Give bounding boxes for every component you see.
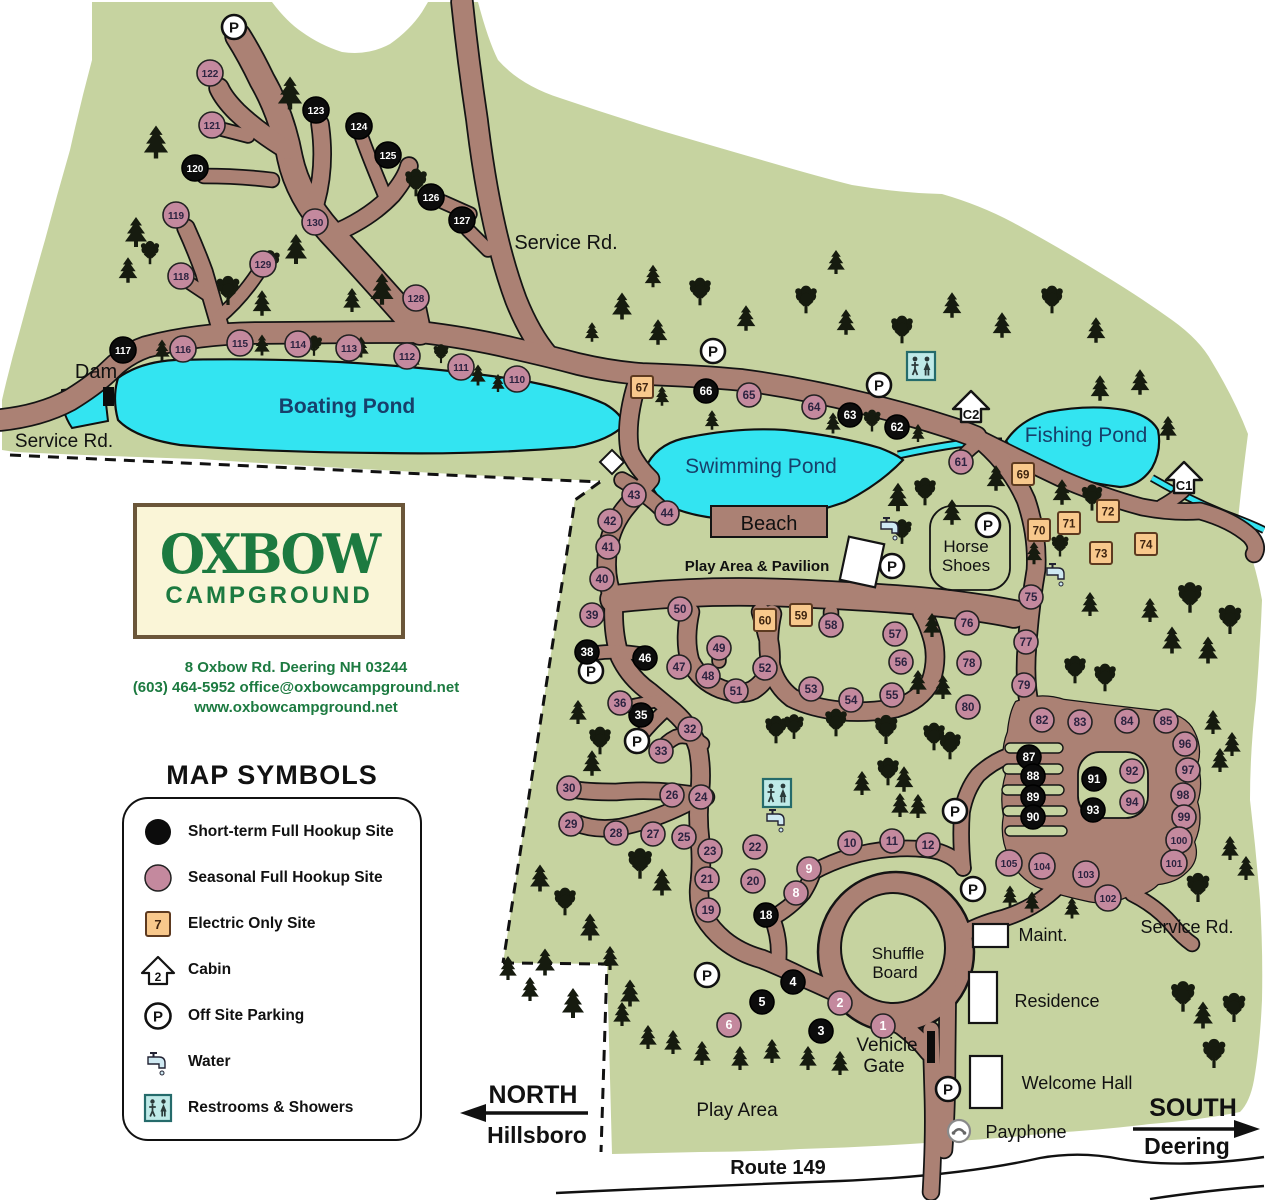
legend-symbol: [140, 861, 176, 895]
site-number: 103: [1078, 870, 1095, 881]
site-66: 66: [694, 379, 718, 403]
site-number: 83: [1074, 717, 1087, 729]
site-4: 4: [781, 970, 805, 994]
site-number: 89: [1027, 792, 1040, 804]
site-53: 53: [799, 677, 823, 701]
site-120: 120: [182, 155, 208, 181]
cabin-label: C1: [1176, 478, 1193, 493]
road: [204, 176, 272, 180]
map-label: Route 149: [730, 1157, 826, 1179]
legend-symbol: [140, 1091, 176, 1125]
site-2: 2: [828, 991, 852, 1015]
site-11: 11: [880, 829, 904, 853]
legend-box: Short-term Full Hookup SiteSeasonal Full…: [122, 797, 422, 1141]
contact-block: 8 Oxbow Rd. Deering NH 03244 (603) 464-5…: [56, 658, 536, 717]
site-124: 124: [346, 113, 372, 139]
site-number: 97: [1182, 765, 1195, 777]
site-90: 90: [1021, 805, 1045, 829]
site-number: 111: [453, 363, 469, 374]
site-number: 6: [726, 1018, 733, 1032]
parking-letter: P: [229, 20, 239, 37]
electric-site-icon: 7: [140, 907, 176, 941]
map-label: Board: [872, 963, 917, 982]
map-label: Play Area: [696, 1100, 778, 1121]
south-town-label: Deering: [1144, 1133, 1230, 1159]
figure-head: [925, 357, 930, 362]
site-number: 47: [673, 662, 686, 674]
site-number: 72: [1102, 507, 1115, 519]
site-number: 105: [1001, 859, 1018, 870]
logo: OXBOW CAMPGROUND: [133, 503, 405, 639]
site-number: 99: [1178, 812, 1191, 824]
payphone-icon: [948, 1120, 970, 1142]
parking-icon: P: [222, 15, 246, 39]
short-term-site-icon: [140, 815, 176, 849]
legend-faucet: [148, 1057, 165, 1068]
phone-email-line: (603) 464-5952 office@oxbowcampground.ne…: [56, 678, 536, 698]
legend-pink-circle: [145, 865, 171, 891]
site-73: 73: [1090, 542, 1112, 564]
site-65: 65: [737, 383, 761, 407]
logo-title: OXBOW: [160, 530, 378, 579]
site-number: 76: [961, 618, 974, 630]
h: [150, 1099, 154, 1103]
site-number: 24: [695, 792, 708, 804]
legend-symbol: P: [140, 999, 176, 1033]
site-number: 119: [168, 211, 185, 222]
site-116: 116: [170, 336, 196, 362]
site-42: 42: [598, 509, 622, 533]
site-30: 30: [557, 776, 581, 800]
address-line: 8 Oxbow Rd. Deering NH 03244: [56, 658, 536, 678]
building-residence: [969, 972, 997, 1023]
map-label: Service Rd.: [1140, 917, 1233, 937]
site-number: 26: [666, 790, 679, 802]
restrooms-icon: [140, 1091, 176, 1125]
site-number: 3: [818, 1024, 825, 1038]
site-38: 38: [575, 640, 599, 664]
site-number: 94: [1126, 797, 1139, 809]
site-61: 61: [949, 450, 973, 474]
site-52: 52: [753, 656, 777, 680]
site-93: 93: [1081, 798, 1105, 822]
map-label: Maint.: [1018, 925, 1067, 945]
site-29: 29: [559, 812, 583, 836]
site-74: 74: [1135, 533, 1157, 555]
road: [316, 124, 322, 202]
site-number: 66: [700, 386, 713, 398]
site-97: 97: [1176, 758, 1200, 782]
map-label: Play Area & Pavilion: [685, 558, 830, 575]
site-41: 41: [596, 535, 620, 559]
site-number: 27: [647, 829, 660, 841]
site-number: 93: [1087, 805, 1100, 817]
map-label: Service Rd.: [514, 232, 617, 254]
south-label: SOUTH: [1149, 1094, 1237, 1122]
parking-letter: P: [702, 968, 712, 985]
site-number: 39: [586, 610, 599, 622]
parking-letter: P: [983, 518, 993, 535]
site-118: 118: [168, 263, 194, 289]
map-label: Service Rd.: [15, 431, 113, 452]
legend-item-3: 2Cabin: [140, 953, 410, 987]
road: [221, 129, 248, 136]
site-55: 55: [880, 683, 904, 707]
site-24: 24: [689, 785, 713, 809]
site-26: 26: [660, 783, 684, 807]
site-77: 77: [1014, 630, 1038, 654]
site-number: 52: [759, 663, 772, 675]
site-40: 40: [590, 567, 614, 591]
road: [571, 789, 706, 797]
site-102: 102: [1095, 885, 1121, 911]
site-58: 58: [819, 613, 843, 637]
site-number: 80: [962, 702, 975, 714]
dam-structure: [103, 387, 114, 406]
north-arrow-head: [460, 1104, 486, 1122]
legend-black-circle: [145, 819, 171, 845]
site-19: 19: [696, 898, 720, 922]
pine-tree-icon: [521, 977, 539, 1001]
map-label: Gate: [863, 1056, 904, 1077]
map-label: Residence: [1014, 991, 1099, 1011]
site-number: 104: [1034, 862, 1051, 873]
map-label: Shoes: [942, 556, 990, 575]
map-label: Welcome Hall: [1022, 1073, 1133, 1093]
legend-title: MAP SYMBOLS: [122, 760, 422, 791]
site-75: 75: [1019, 585, 1043, 609]
site-number: 67: [636, 383, 649, 395]
site-number: 65: [743, 390, 756, 402]
site-117: 117: [110, 337, 136, 363]
site-85: 85: [1154, 709, 1178, 733]
site-number: 96: [1179, 739, 1192, 751]
parking-letter: P: [968, 882, 978, 899]
site-92: 92: [1120, 759, 1144, 783]
site-94: 94: [1120, 790, 1144, 814]
site-63: 63: [838, 403, 862, 427]
receiver-end: [963, 1131, 967, 1135]
legend-item-label: Restrooms & Showers: [188, 1099, 353, 1117]
south-arrow-head: [1234, 1120, 1260, 1138]
site-number: 115: [232, 339, 249, 350]
parking-icon: P: [695, 963, 719, 987]
site-number: 59: [795, 611, 808, 623]
site-9: 9: [797, 857, 821, 881]
site-number: 55: [886, 690, 899, 702]
site-82: 82: [1030, 708, 1054, 732]
site-number: 32: [684, 724, 697, 736]
site-number: 75: [1025, 592, 1038, 604]
site-number: 113: [341, 344, 358, 355]
site-number: 62: [891, 422, 904, 434]
site-51: 51: [724, 679, 748, 703]
legend-item-4: POff Site Parking: [140, 999, 410, 1033]
legend-drop: [160, 1071, 164, 1075]
site-59: 59: [790, 604, 812, 626]
site-125: 125: [375, 142, 401, 168]
pine-tree-icon: [562, 988, 584, 1018]
site-number: 98: [1177, 790, 1190, 802]
legend-item-6: Restrooms & Showers: [140, 1091, 410, 1125]
site-71: 71: [1058, 512, 1080, 534]
water-icon: [140, 1045, 176, 1079]
legend-item-label: Water: [188, 1053, 231, 1071]
site-number: 28: [610, 828, 623, 840]
legend-item-1: Seasonal Full Hookup Site: [140, 861, 410, 895]
legend-symbol-text: P: [153, 1009, 163, 1026]
restrooms-icon: [907, 352, 935, 380]
legend-item-label: Cabin: [188, 961, 231, 979]
parking-icon: P: [976, 513, 1000, 537]
legend-symbol: 7: [140, 907, 176, 941]
legend-item-label: Seasonal Full Hookup Site: [188, 869, 383, 887]
site-number: 53: [805, 684, 818, 696]
site-5: 5: [750, 990, 774, 1014]
site-113: 113: [336, 335, 362, 361]
site-number: 128: [408, 294, 425, 305]
site-number: 100: [1171, 836, 1188, 847]
site-number: 82: [1036, 715, 1049, 727]
site-number: 46: [639, 653, 652, 665]
payphone-circle: [948, 1120, 970, 1142]
site-48: 48: [696, 664, 720, 688]
site-79: 79: [1012, 673, 1036, 697]
site-number: 92: [1126, 766, 1139, 778]
site-number: 12: [922, 840, 935, 852]
site-number: 44: [661, 508, 674, 520]
site-number: 79: [1018, 680, 1031, 692]
site-60: 60: [754, 609, 776, 631]
site-112: 112: [394, 343, 420, 369]
site-number: 78: [963, 658, 976, 670]
site-80: 80: [956, 695, 980, 719]
water-drop: [779, 828, 783, 832]
h: [161, 1099, 165, 1103]
site-35: 35: [629, 703, 653, 727]
site-number: 110: [509, 375, 526, 386]
site-number: 64: [808, 402, 821, 414]
legend-restroom: [145, 1095, 171, 1121]
site-number: 121: [204, 121, 221, 132]
north-town-label: Hillsboro: [487, 1122, 587, 1148]
legend-item-label: Short-term Full Hookup Site: [188, 823, 394, 841]
map-label: Beach: [741, 513, 798, 535]
water-drop: [1059, 582, 1063, 586]
route-149-road-line: [1150, 1186, 1264, 1199]
site-number: 91: [1088, 774, 1101, 786]
site-121: 121: [199, 112, 225, 138]
restroom-square: [763, 779, 791, 807]
site-number: 48: [702, 671, 715, 683]
parking-icon: P: [625, 729, 649, 753]
site-76: 76: [955, 611, 979, 635]
site-110: 110: [504, 366, 530, 392]
site-number: 2: [837, 996, 844, 1010]
site-number: 38: [581, 647, 594, 659]
legend-item-5: Water: [140, 1045, 410, 1079]
site-72: 72: [1097, 500, 1119, 522]
site-100: 100: [1166, 827, 1192, 853]
site-number: 101: [1166, 859, 1183, 870]
site-129: 129: [250, 251, 276, 277]
site-54: 54: [839, 688, 863, 712]
vehicle-gate-bar: [927, 1031, 935, 1063]
parking-icon: P: [867, 373, 891, 397]
water-drop: [893, 536, 897, 540]
campground-map-page: PPPPPPPPPPPC2C11234568910111218192021222…: [0, 0, 1265, 1200]
site-number: 116: [175, 345, 192, 356]
site-number: 33: [655, 746, 668, 758]
site-number: 77: [1020, 637, 1033, 649]
parking-letter: P: [632, 734, 642, 751]
site-number: 58: [825, 620, 838, 632]
site-number: 35: [635, 710, 648, 722]
site-number: 43: [628, 490, 641, 502]
site-3: 3: [809, 1019, 833, 1043]
site-number: 90: [1027, 812, 1040, 824]
site-123: 123: [303, 97, 329, 123]
site-number: 124: [351, 122, 368, 133]
site-21: 21: [695, 867, 719, 891]
building-welcome-hall: [970, 1056, 1002, 1108]
site-number: 9: [806, 862, 813, 876]
legend-symbol: 2: [140, 953, 176, 987]
parking-icon: P: [701, 339, 725, 363]
site-28: 28: [604, 821, 628, 845]
route-149-road-line: [556, 1155, 1264, 1193]
site-number: 63: [844, 410, 857, 422]
building-maintenance: [973, 924, 1008, 947]
parking-letter: P: [708, 344, 718, 361]
site-number: 125: [380, 151, 397, 162]
site-number: 19: [702, 905, 715, 917]
site-number: 70: [1033, 526, 1046, 538]
site-39: 39: [580, 603, 604, 627]
map-label: Boating Pond: [279, 395, 415, 418]
site-number: 71: [1063, 519, 1076, 531]
site-47: 47: [667, 655, 691, 679]
site-number: 51: [730, 686, 743, 698]
site-number: 120: [187, 164, 204, 175]
site-number: 1: [880, 1019, 887, 1033]
legend-symbol-text: 2: [155, 970, 162, 984]
site-43: 43: [622, 483, 646, 507]
site-105: 105: [996, 850, 1022, 876]
site-number: 122: [202, 69, 219, 80]
site-128: 128: [403, 285, 429, 311]
legend-symbol: [140, 815, 176, 849]
site-number: 8: [793, 886, 800, 900]
restroom-square: [907, 352, 935, 380]
site-122: 122: [197, 60, 223, 86]
site-56: 56: [889, 650, 913, 674]
site-number: 41: [602, 542, 615, 554]
site-99: 99: [1172, 805, 1196, 829]
site-50: 50: [668, 597, 692, 621]
site-number: 23: [704, 846, 717, 858]
site-12: 12: [916, 833, 940, 857]
site-number: 30: [563, 783, 576, 795]
site-number: 57: [889, 629, 902, 641]
parking-letter: P: [943, 1082, 953, 1099]
site-number: 102: [1100, 894, 1117, 905]
site-number: 56: [895, 657, 908, 669]
parking-letter: P: [887, 559, 897, 576]
cabin-label: C2: [963, 407, 980, 422]
site-32: 32: [678, 717, 702, 741]
parking-icon: P: [936, 1077, 960, 1101]
parking-icon: P: [140, 999, 176, 1033]
figure-head: [913, 357, 918, 362]
site-126: 126: [418, 184, 444, 210]
site-number: 130: [307, 218, 324, 229]
site-number: 87: [1023, 752, 1036, 764]
site-18: 18: [754, 903, 778, 927]
site-114: 114: [285, 331, 311, 357]
legend-item-2: 7Electric Only Site: [140, 907, 410, 941]
site-104: 104: [1029, 853, 1055, 879]
site-number: 118: [173, 272, 190, 283]
site-91: 91: [1082, 767, 1106, 791]
site-number: 54: [845, 695, 858, 707]
site-22: 22: [743, 835, 767, 859]
site-23: 23: [698, 839, 722, 863]
site-78: 78: [957, 651, 981, 675]
parking-icon: P: [880, 554, 904, 578]
site-number: 112: [399, 352, 416, 363]
cabin-icon: 2: [140, 953, 176, 987]
site-6: 6: [717, 1013, 741, 1037]
site-number: 20: [747, 876, 760, 888]
site-number: 73: [1095, 549, 1108, 561]
legend-item-label: Off Site Parking: [188, 1007, 304, 1025]
site-number: 42: [604, 516, 617, 528]
site-83: 83: [1068, 710, 1092, 734]
map-label: Swimming Pond: [685, 455, 837, 478]
legend-item-0: Short-term Full Hookup Site: [140, 815, 410, 849]
site-111: 111: [448, 354, 474, 380]
site-number: 129: [255, 260, 272, 271]
map-label: Dam: [75, 361, 117, 383]
site-number: 69: [1017, 470, 1030, 482]
site-70: 70: [1028, 519, 1050, 541]
building-pavilion: [840, 537, 884, 588]
map-label: Horse: [943, 537, 988, 556]
site-98: 98: [1171, 783, 1195, 807]
site-number: 22: [749, 842, 762, 854]
site-number: 74: [1140, 540, 1153, 552]
site-number: 49: [713, 643, 726, 655]
map-symbols-legend: MAP SYMBOLS Short-term Full Hookup SiteS…: [122, 760, 422, 1141]
site-101: 101: [1161, 850, 1187, 876]
site-number: 40: [596, 574, 609, 586]
parking-letter: P: [586, 664, 596, 681]
site-64: 64: [802, 395, 826, 419]
site-number: 84: [1121, 716, 1134, 728]
site-number: 29: [565, 819, 578, 831]
parking-icon: P: [943, 799, 967, 823]
site-number: 114: [290, 340, 307, 351]
site-62: 62: [885, 415, 909, 439]
map-label: Vehicle: [856, 1035, 917, 1056]
site-number: 88: [1027, 771, 1040, 783]
site-10: 10: [838, 831, 862, 855]
site-number: 21: [701, 874, 714, 886]
site-46: 46: [633, 646, 657, 670]
site-20: 20: [741, 869, 765, 893]
site-36: 36: [608, 691, 632, 715]
